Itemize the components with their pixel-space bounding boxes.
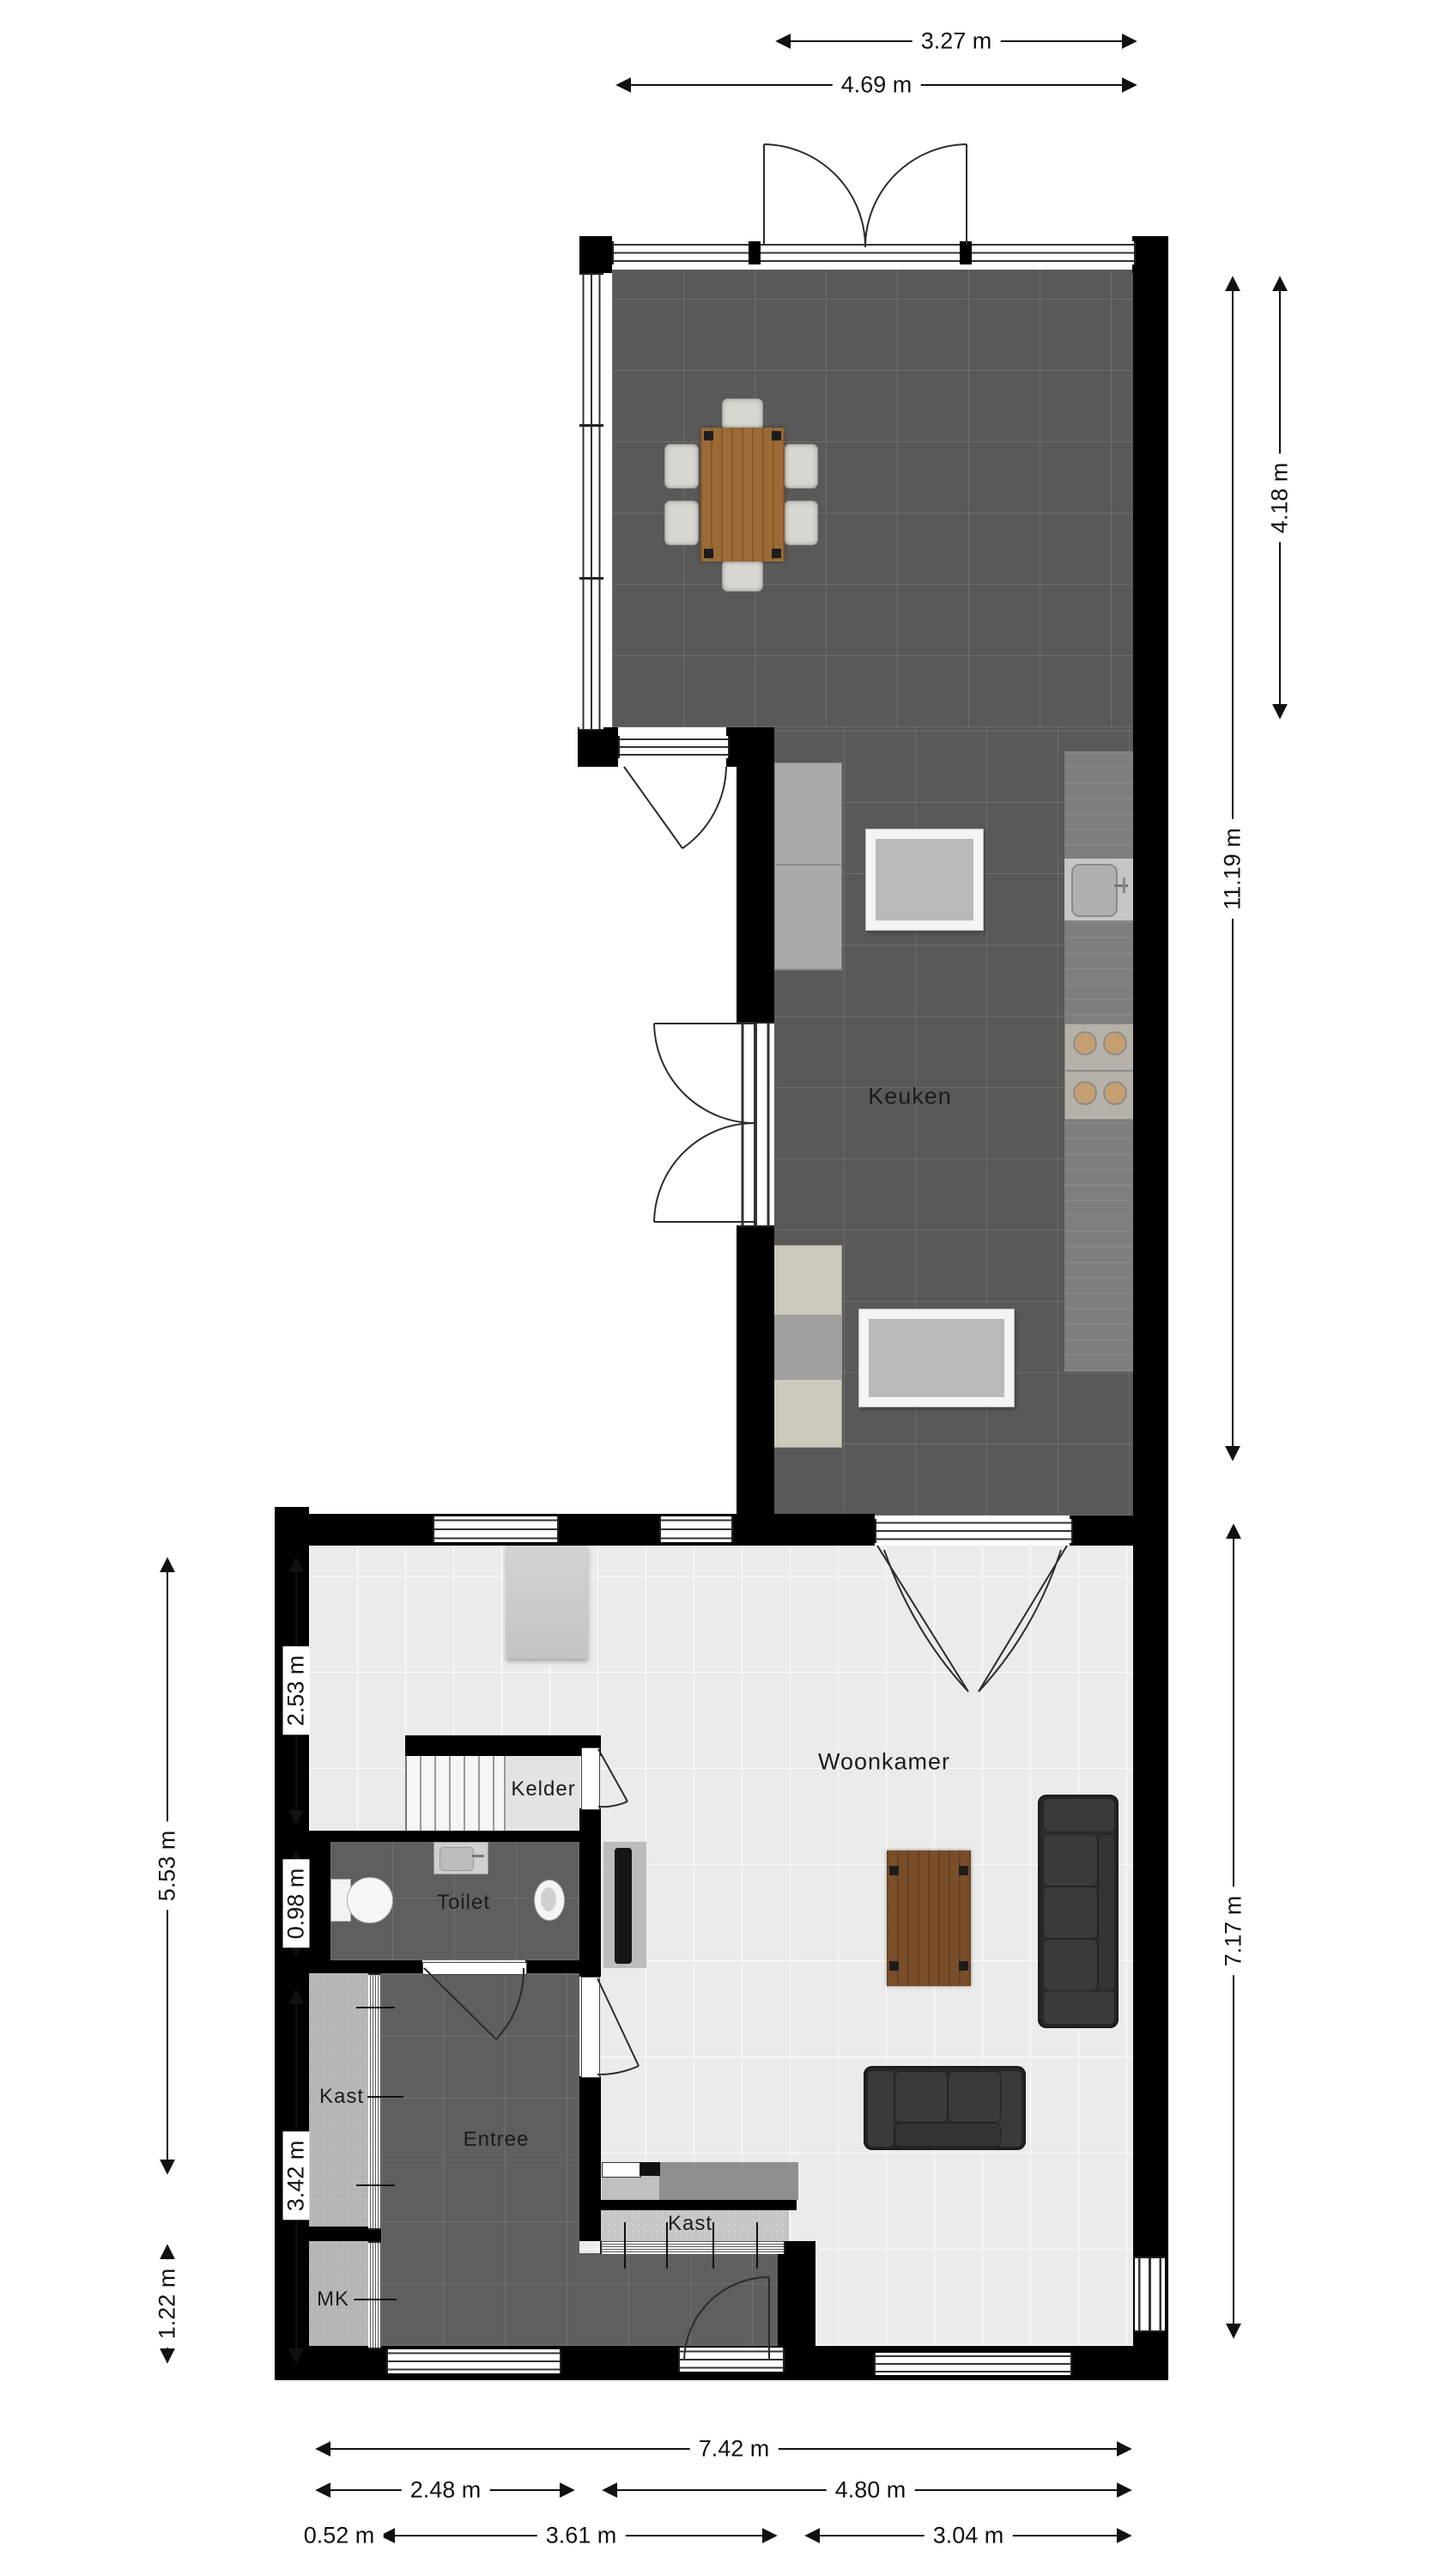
room-label-kast-hal: Kast	[319, 2085, 364, 2109]
wall-right-outer	[1133, 236, 1168, 2380]
room-label-toilet: Toilet	[437, 1891, 490, 1915]
dining-table	[700, 428, 785, 562]
wall-toilet-left	[309, 1831, 330, 1973]
dim-left-122: 1.22 m	[155, 2260, 181, 2348]
kitchen-counter-beige	[773, 1245, 842, 1448]
dim-top-469: 4.69 m	[833, 72, 921, 99]
window-right	[1135, 2257, 1165, 2332]
chimney-cupboard	[506, 1546, 588, 1659]
wall-closet-divider	[275, 2227, 381, 2241]
wall	[579, 1735, 601, 1747]
wall	[726, 727, 774, 767]
dining-chair	[784, 444, 818, 489]
dim-bottom-052: 0.52 m	[295, 2523, 384, 2549]
wall	[579, 1808, 601, 1831]
wall	[1070, 1516, 1165, 1546]
dim-left-553: 5.53 m	[155, 1822, 181, 1911]
sofa-three-seat	[1038, 1795, 1119, 2028]
mk-sliding-door	[368, 2241, 381, 2349]
dim-right-418: 4.18 m	[1267, 454, 1294, 543]
window-kitchen-left	[579, 273, 603, 731]
toilet-door-frame	[422, 1962, 527, 1975]
small-sink	[534, 1880, 565, 1921]
wall	[737, 767, 774, 1022]
dim-left-253: 2.53 m	[283, 1647, 310, 1735]
closet-sliding-doors	[368, 1973, 381, 2230]
room-label-keuken: Keuken	[868, 1084, 952, 1110]
entree-living-door-frame	[581, 1977, 600, 2078]
sideboard-low	[602, 2175, 659, 2200]
cellar-door-frame	[581, 1747, 600, 1810]
room-label-woonkamer: Woonkamer	[818, 1749, 950, 1776]
door-sill-terrace	[618, 736, 730, 758]
room-label-mk: MK	[317, 2287, 349, 2312]
dim-bottom-742: 7.42 m	[690, 2436, 779, 2463]
wall-niche	[602, 2162, 641, 2178]
dim-bottom-361: 3.61 m	[537, 2523, 626, 2549]
window-mullion	[960, 241, 972, 264]
dining-chair	[664, 444, 699, 489]
dim-bottom-480: 4.80 m	[827, 2477, 915, 2504]
dim-left-342: 3.42 m	[283, 2132, 310, 2221]
wall-closet-top	[597, 2200, 797, 2210]
room-label-entree: Entree	[464, 2128, 530, 2152]
wall-living-top	[309, 1514, 875, 1546]
wall	[579, 236, 612, 273]
floor-plan: Keuken Woonkamer Kelder Toilet Kast Entr…	[0, 0, 1449, 2576]
dim-left-098: 0.98 m	[283, 1860, 310, 1948]
kitchen-island	[858, 1309, 1015, 1407]
dining-chair	[784, 501, 818, 545]
kitchen-counter-left	[774, 762, 842, 970]
dining-chair	[722, 559, 763, 592]
wall	[578, 727, 618, 767]
tv	[615, 1848, 632, 1964]
dim-bottom-248: 2.48 m	[402, 2477, 490, 2504]
window-living-top-a	[433, 1516, 559, 1542]
window-top	[612, 241, 1136, 264]
wall-toilet-bottom	[309, 1960, 422, 1973]
closet-living-sliding-doors	[600, 2241, 785, 2254]
wall	[737, 1224, 774, 1516]
kitchen-island	[865, 829, 984, 931]
sideboard	[659, 2162, 798, 2200]
wall-closet-right	[778, 2241, 815, 2346]
dining-chair	[722, 398, 763, 431]
wall-cellar-top	[405, 1735, 601, 1756]
window-mullion	[749, 241, 761, 264]
wall-niche-dark	[640, 2162, 660, 2176]
dim-right-717: 7.17 m	[1221, 1887, 1247, 1976]
toilet-bowl-seat	[347, 1877, 393, 1923]
kitchen-stove	[1064, 1024, 1135, 1120]
kitchen-floor-upper	[612, 270, 1133, 727]
window-bottom-east	[874, 2353, 1072, 2375]
dim-top-327: 3.27 m	[912, 28, 1001, 55]
window-bottom-west	[386, 2349, 561, 2373]
front-door-sill	[678, 2348, 785, 2372]
window-living-top-b	[659, 1516, 733, 1542]
wall	[579, 1842, 601, 1977]
washbasin	[433, 1842, 488, 1874]
wall-toilet-bottom	[525, 1960, 601, 1973]
wall	[579, 2076, 601, 2241]
entree-floor-east	[381, 2253, 798, 2346]
kitchen-sink	[1064, 859, 1133, 920]
dim-bottom-304: 3.04 m	[925, 2523, 1013, 2549]
wall	[309, 1831, 601, 1842]
sofa-two-seat	[864, 2066, 1026, 2150]
french-door-opening-living	[875, 1519, 1073, 1543]
dining-chair	[664, 501, 699, 545]
room-label-kast-woonkamer: Kast	[668, 2212, 712, 2236]
coffee-table	[887, 1850, 971, 1986]
dim-right-1119: 11.19 m	[1220, 819, 1246, 919]
cellar-stairs	[405, 1756, 506, 1831]
french-door-opening-west	[737, 1022, 774, 1227]
room-label-kelder: Kelder	[511, 1777, 575, 1801]
